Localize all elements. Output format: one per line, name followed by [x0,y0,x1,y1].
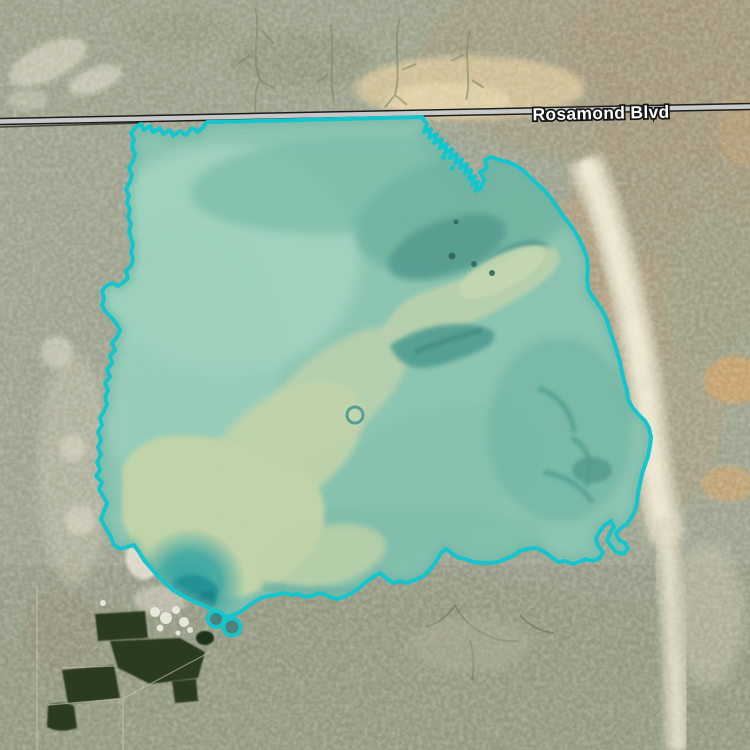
boundary-dot [450,166,455,171]
pond-loop [224,619,241,636]
satellite-map: Rosamond Blvd [0,0,750,750]
road-label: Rosamond Blvd [532,102,669,125]
boundary-dot [441,154,447,160]
map-canvas[interactable]: Rosamond Blvd [0,0,750,750]
pond-loop [208,611,224,627]
